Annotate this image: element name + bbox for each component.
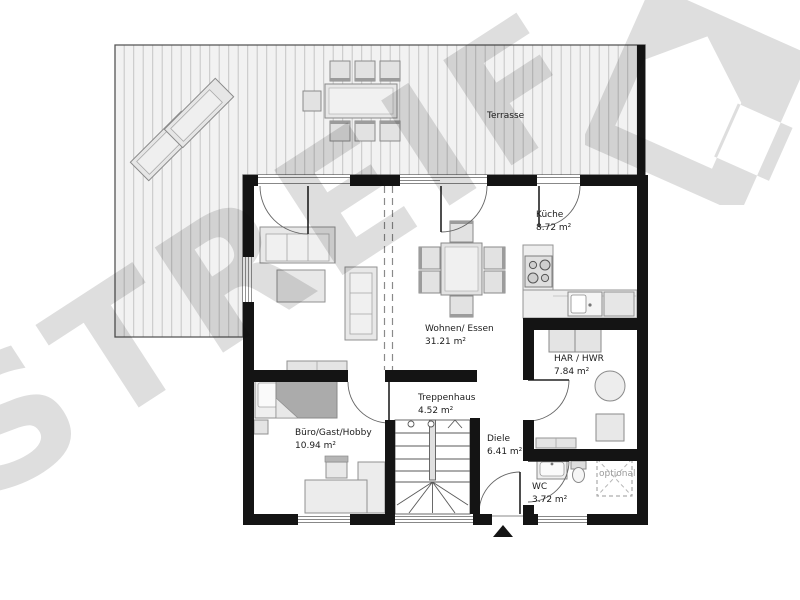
- kitchen-cabinet: [604, 292, 634, 316]
- utility-cabinet: [536, 438, 576, 448]
- nightstand: [254, 420, 268, 434]
- outdoor-dining-table: [325, 84, 397, 118]
- desk-chair: [325, 456, 348, 478]
- floor-plan-drawing: [0, 0, 800, 600]
- dining-table: [441, 243, 482, 295]
- sofa: [345, 267, 377, 340]
- storage-unit: [596, 414, 624, 441]
- sofa: [260, 227, 335, 263]
- toilet: [571, 461, 586, 483]
- floor-plan-page: Terrasse Küche 8.72 m² Wohnen/ Essen 31.…: [0, 0, 800, 600]
- entrance-arrow-icon: [493, 525, 513, 537]
- stove: [525, 256, 552, 287]
- staircase: [395, 420, 470, 514]
- washer-dryer: [549, 328, 601, 352]
- kitchen-sink: [568, 292, 602, 316]
- coffee-table: [277, 270, 325, 302]
- wc-sink: [537, 459, 567, 479]
- bed: [255, 379, 337, 418]
- water-tank: [595, 371, 625, 401]
- terrace-privacy-wall: [637, 45, 645, 177]
